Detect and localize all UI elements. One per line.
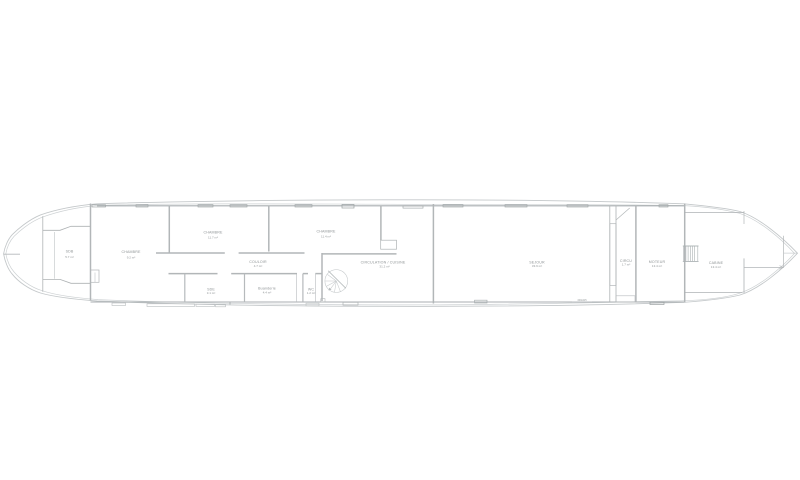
svg-text:9.2 m²: 9.2 m² bbox=[127, 256, 136, 260]
svg-text:5.7 m²: 5.7 m² bbox=[65, 255, 74, 259]
svg-text:11.7 m²: 11.7 m² bbox=[208, 235, 218, 239]
svg-text:CHAMBRE: CHAMBRE bbox=[316, 229, 335, 233]
svg-text:CHAMBRE: CHAMBRE bbox=[203, 230, 222, 234]
svg-text:SDB: SDB bbox=[66, 249, 74, 253]
svg-text:1.7 m²: 1.7 m² bbox=[622, 262, 631, 266]
svg-text:13.4 m²: 13.4 m² bbox=[711, 265, 721, 269]
svg-text:CHAMBRE: CHAMBRE bbox=[121, 250, 140, 254]
svg-text:4.7 m²: 4.7 m² bbox=[254, 264, 263, 268]
svg-text:13.4 m²: 13.4 m² bbox=[652, 264, 662, 268]
svg-text:11.4 m²: 11.4 m² bbox=[321, 235, 331, 239]
svg-text:340x215: 340x215 bbox=[577, 299, 587, 302]
svg-text:1.2 m²: 1.2 m² bbox=[307, 291, 316, 295]
svg-text:3.1 m²: 3.1 m² bbox=[207, 291, 216, 295]
svg-text:4.4 m²: 4.4 m² bbox=[263, 290, 272, 294]
svg-text:31.2 m²: 31.2 m² bbox=[379, 265, 389, 269]
svg-text:33.9 m²: 33.9 m² bbox=[532, 264, 542, 268]
